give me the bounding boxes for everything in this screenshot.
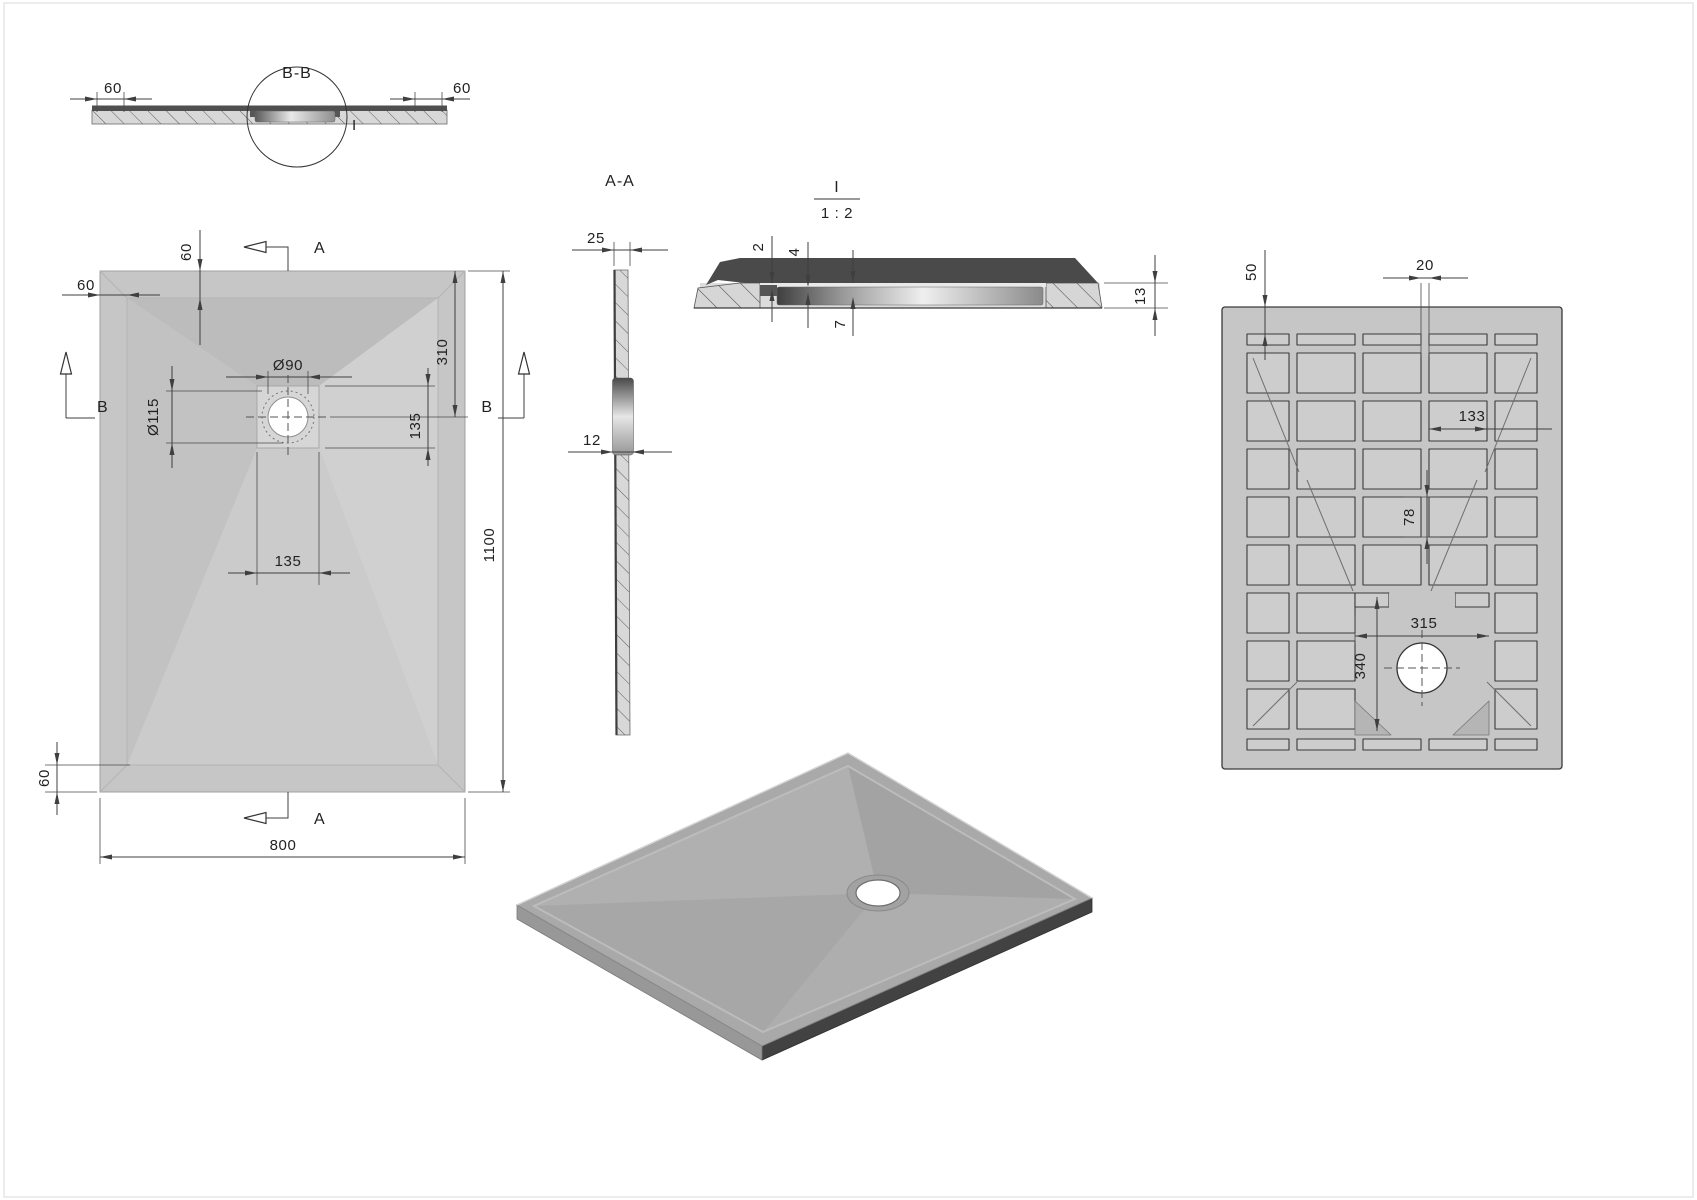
svg-text:A: A bbox=[314, 811, 325, 828]
aa-drain-section bbox=[613, 378, 634, 455]
detail-top-surface bbox=[706, 258, 1098, 285]
detail-callout-label: I bbox=[352, 117, 357, 134]
svg-text:78: 78 bbox=[1401, 508, 1418, 526]
svg-text:4: 4 bbox=[786, 248, 803, 257]
drawing-canvas: B-B I 60 60 bbox=[0, 0, 1697, 1200]
svg-text:25: 25 bbox=[587, 230, 605, 247]
drawing-sheet: B-B I 60 60 bbox=[0, 0, 1697, 1200]
svg-text:60: 60 bbox=[36, 769, 53, 787]
svg-text:A: A bbox=[314, 240, 325, 257]
svg-text:800: 800 bbox=[270, 837, 297, 854]
svg-text:20: 20 bbox=[1416, 257, 1434, 274]
svg-text:13: 13 bbox=[1132, 287, 1149, 305]
bb-top-surface bbox=[92, 106, 447, 112]
svg-text:Ø90: Ø90 bbox=[273, 357, 303, 374]
svg-text:12: 12 bbox=[583, 432, 601, 449]
dim-plan-800: 800 bbox=[100, 798, 465, 864]
svg-text:340: 340 bbox=[1352, 653, 1369, 680]
detail-title: I bbox=[834, 179, 839, 196]
svg-text:1100: 1100 bbox=[481, 528, 498, 563]
detail-body-right bbox=[1046, 283, 1102, 308]
svg-text:50: 50 bbox=[1243, 263, 1260, 281]
svg-text:310: 310 bbox=[434, 339, 451, 366]
section-view-bb: B-B I 60 60 bbox=[70, 65, 471, 167]
svg-text:Ø115: Ø115 bbox=[145, 398, 162, 436]
isometric-view bbox=[517, 753, 1092, 1060]
section-arrow-b-right: B bbox=[481, 352, 529, 418]
svg-text:60: 60 bbox=[453, 80, 471, 97]
bb-view-title: B-B bbox=[282, 65, 312, 82]
aa-view-title: A-A bbox=[605, 173, 635, 190]
svg-text:B: B bbox=[97, 399, 108, 416]
section-view-aa: A-A 25 12 bbox=[568, 173, 672, 735]
plan-view: A A B B 60 60 bbox=[36, 230, 530, 864]
bb-drain-recess bbox=[255, 111, 335, 122]
detail-scale: 1 : 2 bbox=[821, 205, 853, 222]
svg-text:60: 60 bbox=[178, 243, 195, 261]
svg-text:133: 133 bbox=[1459, 408, 1486, 425]
svg-text:2: 2 bbox=[750, 243, 767, 252]
svg-text:60: 60 bbox=[104, 80, 122, 97]
svg-text:135: 135 bbox=[407, 413, 424, 440]
section-arrow-a-bottom: A bbox=[244, 792, 325, 828]
svg-text:135: 135 bbox=[275, 553, 302, 570]
dim-plan-1100: 1100 bbox=[468, 271, 510, 792]
section-arrow-a-top: A bbox=[244, 240, 325, 271]
svg-text:315: 315 bbox=[1411, 615, 1438, 632]
svg-text:60: 60 bbox=[77, 277, 95, 294]
dim-aa-25: 25 bbox=[572, 230, 668, 266]
svg-text:B: B bbox=[481, 399, 492, 416]
detail-view-i: I 1 : 2 2 4 7 13 bbox=[694, 179, 1168, 336]
iso-drain-hole bbox=[856, 880, 900, 906]
detail-drain-flange bbox=[777, 287, 1043, 305]
svg-text:7: 7 bbox=[832, 320, 849, 329]
bottom-view: 50 20 133 78 315 340 bbox=[1222, 250, 1562, 769]
dim-detail-13: 13 bbox=[1104, 255, 1168, 336]
